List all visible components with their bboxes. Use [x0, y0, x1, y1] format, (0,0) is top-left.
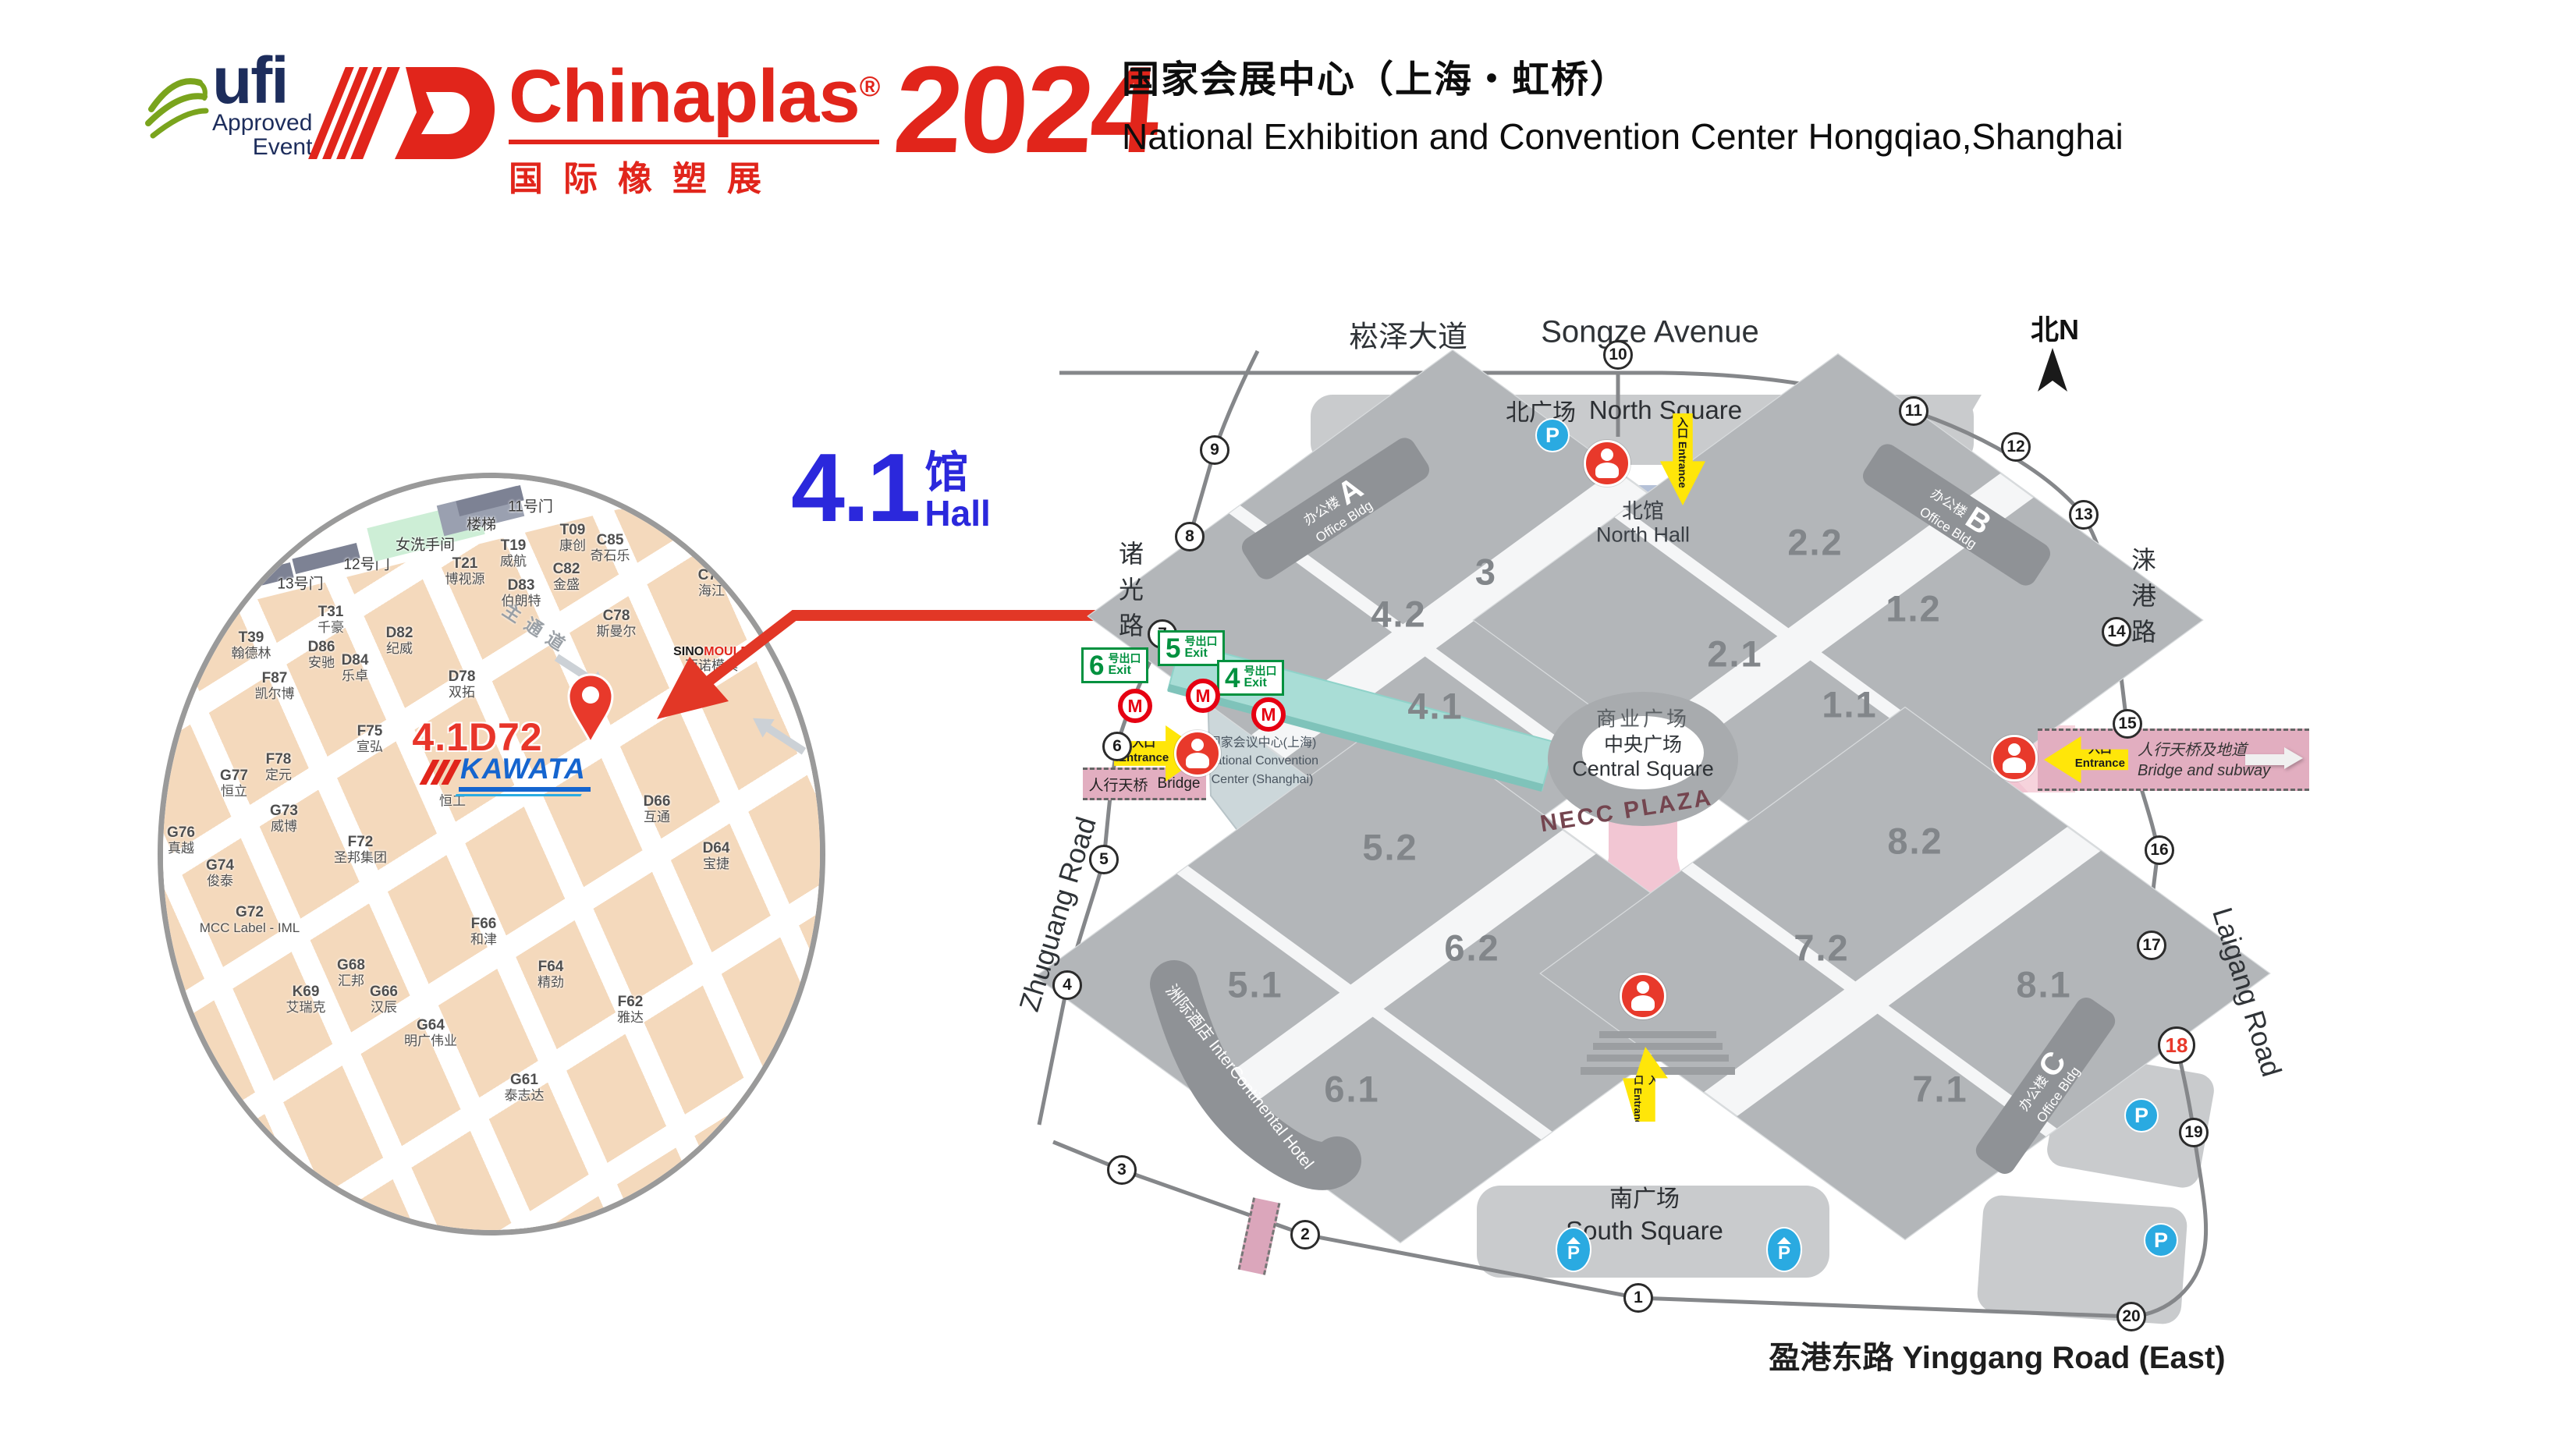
entrance-arrow-east: 入口Entrance — [2044, 736, 2128, 783]
road-marker-11: 11 — [1899, 396, 1928, 426]
entrance-arrow-north-label: 入口 Entrance — [1675, 417, 1691, 488]
header: ufi Approved Event Chinaplas® — [0, 0, 2576, 203]
parking-icon: P — [2124, 1098, 2159, 1133]
road-marker-19: 19 — [2179, 1118, 2209, 1147]
exit-number: 4 — [1225, 665, 1240, 692]
office-a-label: 办公楼 A Office Bldg — [1295, 470, 1376, 546]
hall-label-4.2: 4.2 — [1371, 593, 1426, 636]
road-marker-15: 15 — [2113, 709, 2142, 739]
metro-logo-icon: M — [1118, 689, 1152, 723]
road-marker-16: 16 — [2145, 835, 2174, 865]
hall-label-1.1: 1.1 — [1822, 683, 1877, 726]
exit-suffix-cn: 号出口 — [1184, 636, 1217, 647]
parking-letter: P — [2154, 1228, 2168, 1253]
songze-avenue-cn: 崧泽大道 — [1349, 313, 1467, 356]
south-square-cn: 南广场 — [1609, 1179, 1680, 1214]
road-marker-18: 18 — [2158, 1026, 2195, 1064]
hall-label-8.2: 8.2 — [1887, 820, 1943, 863]
central-square-cn: 中央广场 — [1604, 729, 1682, 757]
chinaplas-year: 2024 — [889, 61, 1160, 200]
metro-logo-icon: M — [1186, 679, 1220, 713]
exit-number: 5 — [1166, 635, 1180, 662]
office-c-label: 办公楼 C Office Bldg — [2007, 1045, 2084, 1126]
road-marker-20: 20 — [2117, 1302, 2146, 1331]
hall-label-4.1: 4.1 — [1407, 685, 1463, 728]
central-square-en: Central Square — [1572, 757, 1714, 782]
necc-plaza-label: NECC PLAZA — [1538, 785, 1715, 838]
metro-exit-6: 6号出口Exit — [1081, 647, 1148, 683]
exit-text: 号出口Exit — [1244, 665, 1276, 690]
map-labels: 崧泽大道 Songze Avenue 涞港路 Laigang Road 诸光路 … — [0, 0, 2576, 1450]
songze-avenue-en: Songze Avenue — [1541, 315, 1759, 350]
road-marker-10: 10 — [1603, 340, 1633, 370]
exit-suffix-en: Exit — [1244, 677, 1276, 690]
road-marker-1: 1 — [1623, 1283, 1653, 1313]
yinggang-road-label: 盈港东路 Yinggang Road (East) — [1769, 1332, 2225, 1377]
hall-label-2.1: 2.1 — [1707, 633, 1762, 675]
page: ufi Approved Event Chinaplas® — [0, 0, 2576, 1450]
exit-suffix-en: Exit — [1108, 665, 1141, 678]
road-marker-3: 3 — [1107, 1155, 1137, 1185]
road-marker-13: 13 — [2069, 500, 2099, 530]
parking-icon: P — [1535, 418, 1570, 452]
zhuguang-road-cn: 诸光路 — [1112, 541, 1148, 648]
exit-suffix-en: Exit — [1184, 647, 1217, 661]
office-b-label: 办公楼 B Office Bldg — [1916, 477, 1997, 552]
hall-label-6.1: 6.1 — [1324, 1068, 1379, 1111]
north-square-en: North Square — [1589, 395, 1742, 425]
hotel-label: 洲际酒店 InterContinental Hotel — [1161, 979, 1320, 1173]
bridge-east-cn: 人行天桥及地道 — [2138, 737, 2247, 760]
entrance-arrow-south-label: 入口 Entrance — [1630, 1075, 1660, 1131]
road-marker-6: 6 — [1102, 732, 1132, 761]
chinaplas-tagline: 国际橡塑展 — [509, 140, 879, 200]
road-marker-4: 4 — [1052, 970, 1082, 1000]
exit-suffix-cn: 号出口 — [1108, 653, 1141, 665]
venue-title-en: National Exhibition and Convention Cente… — [1122, 115, 2124, 158]
metro-logo-icon: M — [1251, 697, 1286, 732]
entrance-person-icon — [1174, 730, 1221, 777]
road-marker-17: 17 — [2137, 931, 2166, 960]
ncc-line1: 国家会议中心(上海) — [1208, 732, 1317, 750]
chinaplas-wordmark: Chinaplas® — [509, 61, 879, 132]
north-hall-cn: 北馆 — [1622, 495, 1664, 525]
parking-letter: P — [1778, 1245, 1790, 1262]
bridge-west-cn: 人行天桥 — [1089, 774, 1148, 795]
road-marker-12: 12 — [2001, 432, 2031, 462]
entrance-person-icon — [1620, 973, 1666, 1019]
hall-label-8.1: 8.1 — [2016, 963, 2071, 1006]
hall-label-3: 3 — [1475, 551, 1497, 594]
hall-label-1.2: 1.2 — [1886, 587, 1941, 630]
exit-text: 号出口Exit — [1108, 653, 1141, 677]
road-marker-14: 14 — [2102, 617, 2131, 647]
ufi-wordmark: ufi — [212, 51, 312, 111]
ufi-logo: ufi Approved Event — [142, 51, 312, 160]
parking-icon: P — [2144, 1223, 2178, 1257]
parking-icon: P — [1556, 1227, 1591, 1272]
road-marker-8: 8 — [1175, 522, 1205, 551]
registered-mark: ® — [860, 70, 880, 102]
hall-label-5.2: 5.2 — [1362, 826, 1418, 869]
subway-arrow-icon — [2245, 754, 2286, 765]
hall-label-7.2: 7.2 — [1794, 927, 1849, 970]
venue-title: 国家会展中心（上海・虹桥） National Exhibition and Co… — [1122, 48, 2124, 158]
ncc-line2: National Convention — [1206, 754, 1318, 768]
road-marker-5: 5 — [1089, 845, 1119, 874]
entrance-arrow-south: 入口 Entrance — [1623, 1047, 1668, 1122]
entrance-person-icon — [1991, 735, 2038, 782]
road-marker-9: 9 — [1200, 435, 1229, 465]
ufi-event: Event — [212, 135, 312, 160]
exit-text: 号出口Exit — [1184, 636, 1217, 660]
exit-suffix-cn: 号出口 — [1244, 665, 1276, 677]
parking-letter: P — [1545, 424, 1559, 448]
ring-top-label: 商业广场 — [1596, 704, 1690, 732]
entrance-person-icon — [1584, 440, 1630, 487]
parking-letter: P — [2134, 1104, 2148, 1128]
metro-exit-4: 4号出口Exit — [1217, 660, 1284, 696]
ufi-approved: Approved — [212, 111, 312, 136]
venue-title-cn: 国家会展中心（上海・虹桥） — [1122, 48, 2124, 103]
ufi-leaf-icon — [142, 51, 212, 145]
hall-label-5.1: 5.1 — [1227, 963, 1283, 1006]
bridge-west-en: Bridge — [1158, 775, 1201, 792]
hall-callout-cn: 馆 — [924, 451, 990, 495]
chinaplas-logo: Chinaplas® 国际橡塑展 2024 — [303, 61, 1155, 200]
laigang-road-en: Laigang Road — [2205, 904, 2288, 1081]
hall-label-7.1: 7.1 — [1912, 1068, 1967, 1111]
road-marker-2: 2 — [1290, 1220, 1320, 1250]
bridge-south — [1238, 1197, 1281, 1275]
hall-label-6.2: 6.2 — [1444, 927, 1499, 970]
ncc-line3: Center (Shanghai) — [1212, 773, 1314, 787]
compass-label: 北N — [2031, 307, 2079, 348]
chinaplas-emblem-icon — [303, 61, 498, 166]
hall-callout-number: 4.1 — [791, 449, 918, 532]
entrance-arrow-north: 入口 Entrance — [1660, 413, 1705, 505]
bridge-east: 入口Entrance 人行天桥及地道 Bridge and subway — [2038, 729, 2309, 791]
hall-callout-en: Hall — [924, 495, 990, 532]
metro-exit-5: 5号出口Exit — [1158, 630, 1225, 666]
hall-callout: 4.1 馆 Hall — [791, 449, 991, 532]
parking-letter: P — [1567, 1245, 1580, 1262]
north-hall-en: North Hall — [1596, 523, 1690, 548]
hall-label-2.2: 2.2 — [1787, 521, 1843, 564]
exit-number: 6 — [1089, 652, 1104, 679]
parking-icon: P — [1766, 1227, 1802, 1272]
